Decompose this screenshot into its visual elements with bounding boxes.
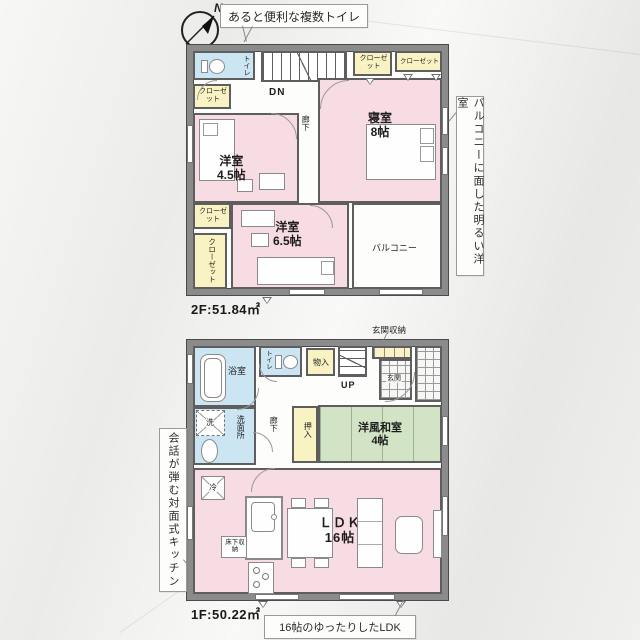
closet-2f-left-lower: クローゼット <box>193 203 231 229</box>
window <box>187 125 193 163</box>
stairs-up-label: UP <box>341 380 356 390</box>
entrance-storage-label: 玄関収納 <box>372 326 406 336</box>
closet-label: クローゼット <box>207 238 216 283</box>
callout-right-text: バルコニーに面した明るい洋室 <box>454 97 486 275</box>
closet-label: クローゼット <box>197 208 229 224</box>
floor-2f-area-label: 2F:51.84㎡ <box>191 299 261 318</box>
hallway-2f-label: 廊下 <box>301 115 310 131</box>
callout-left-text: 会話が弾む対面式キッチン <box>165 432 181 588</box>
window <box>255 594 299 600</box>
balcony-label: バルコニー <box>372 243 417 253</box>
faucet-icon <box>271 514 277 520</box>
room-western-4_5-label: 洋室 4.5帖 <box>217 155 246 183</box>
floorplan-page: N あると便利な複数トイレ トイレ DN クローゼット クローゼット クローゼッ… <box>0 0 640 640</box>
callout-top-pointer <box>242 26 247 42</box>
window <box>379 289 423 295</box>
floor-1f-area-label: 1F:50.22㎡ <box>191 604 261 623</box>
stairs-up-1f <box>338 346 367 377</box>
room-name: 洋風和室 <box>358 422 402 434</box>
floor-storage-label: 床下収納 <box>225 539 245 554</box>
pillow-icon <box>203 123 218 136</box>
closet-2f-top-small: クローゼット <box>353 51 392 76</box>
pillow-icon <box>420 146 434 162</box>
floor-plan-1f: 浴室 トイレ 物入 UP 玄関 洗面所 洗 <box>187 340 448 600</box>
backdrop-crease <box>120 586 186 633</box>
callout-multiple-toilets: あると便利な複数トイレ <box>220 4 368 28</box>
room-ldk-1f: 冷 床下収納 ＬＤＫ 16帖 <box>193 468 442 594</box>
window <box>339 594 395 600</box>
callout-ldk: 16帖のゆったりしたLDK <box>264 615 416 639</box>
window <box>187 506 193 540</box>
balcony-2f: バルコニー <box>352 203 442 289</box>
coffee-table-icon <box>395 516 423 554</box>
chair-icon <box>314 558 329 568</box>
room-size: 8帖 <box>368 126 392 140</box>
stove-icon <box>248 562 274 594</box>
room-name: 洋室 <box>219 154 243 168</box>
room-toilet-2f: トイレ <box>193 51 255 80</box>
fridge-label: 冷 <box>209 483 217 492</box>
desk-icon <box>241 210 275 227</box>
washbasin-icon <box>201 439 218 463</box>
window <box>187 354 193 384</box>
toilet-bowl-icon <box>283 355 298 369</box>
room-western-6_5-2f: 洋室 6.5帖 <box>231 203 349 289</box>
window-mark <box>262 297 272 304</box>
closet-2f-top-wide: クローゼット <box>395 51 442 72</box>
closet-2f-side: クローゼット <box>193 233 227 289</box>
washer-space: 洗 <box>196 410 225 436</box>
room-washitsu-1f: 洋風和室 4帖 <box>318 405 442 463</box>
closet-door-mark <box>431 74 441 81</box>
room-size: 4帖 <box>358 435 402 448</box>
window <box>442 496 448 536</box>
window <box>289 289 325 295</box>
room-bath-label: 浴室 <box>228 366 246 376</box>
room-name: ＬＤＫ <box>319 515 361 530</box>
room-toilet-2f-label: トイレ <box>242 55 250 76</box>
entrance-storage-shelf <box>372 346 412 359</box>
room-ldk-label: ＬＤＫ 16帖 <box>319 516 361 546</box>
hallway-1f-label: 廊下 <box>269 416 278 432</box>
chair-icon <box>314 498 329 508</box>
bathtub-inner <box>204 358 222 398</box>
fridge-space: 冷 <box>201 476 225 500</box>
chair-icon <box>291 558 306 568</box>
desk-icon <box>259 173 285 190</box>
closet-label: クローゼット <box>357 55 390 71</box>
toilet-tank-icon <box>201 60 208 73</box>
room-size: 4.5帖 <box>217 169 246 183</box>
stairs-down-label: DN <box>269 87 285 99</box>
room-name: 洋室 <box>275 220 299 234</box>
closet-label: クローゼット <box>399 58 440 65</box>
window <box>442 147 448 175</box>
closet-monoire-label: 物入 <box>313 358 329 367</box>
room-washroom-label: 洗面所 <box>236 415 245 439</box>
callout-kitchen: 会話が弾む対面式キッチン <box>159 428 187 592</box>
entrance-porch <box>415 346 442 402</box>
washer-label: 洗 <box>206 418 214 427</box>
stool-icon <box>251 233 269 247</box>
sofa-icon <box>357 498 383 568</box>
pillow-icon <box>420 128 434 144</box>
floor-storage-box: 床下収納 <box>221 536 247 558</box>
closet-monoire-1f: 物入 <box>306 348 335 376</box>
chair-icon <box>291 498 306 508</box>
callout-bright-room: バルコニーに面した明るい洋室 <box>456 96 484 276</box>
tv-board-icon <box>433 510 442 558</box>
window <box>442 416 448 446</box>
pillow-icon <box>321 261 334 275</box>
callout-bottom-text: 16帖のゆったりしたLDK <box>279 619 401 635</box>
toilet-bowl-icon <box>209 59 225 74</box>
room-size: 16帖 <box>319 531 361 546</box>
closet-door-mark <box>365 78 375 85</box>
closet-oshiire-label: 押入 <box>303 422 312 438</box>
room-western-6_5-label: 洋室 6.5帖 <box>273 221 302 249</box>
room-size: 6.5帖 <box>273 235 302 249</box>
floor-plan-2f: トイレ DN クローゼット クローゼット クローゼット 洋室 4.5帖 <box>187 45 448 295</box>
room-bedroom-label: 寝室 8帖 <box>368 112 392 140</box>
callout-top-text: あると便利な複数トイレ <box>228 8 360 25</box>
closet-door-mark <box>403 74 413 81</box>
room-washitsu-label: 洋風和室 4帖 <box>358 422 402 447</box>
closet-oshiire-1f: 押入 <box>292 406 318 463</box>
room-name: 寝室 <box>368 111 392 125</box>
